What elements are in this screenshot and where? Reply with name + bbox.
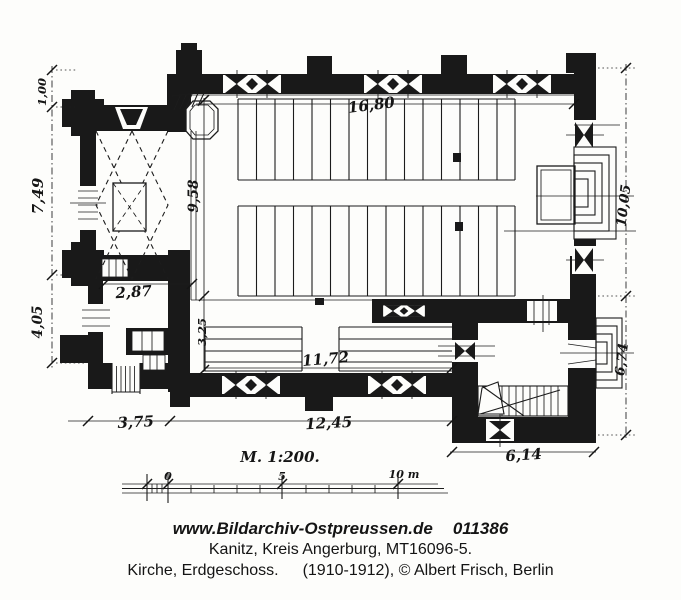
dim-label-porch-width: 3,75 xyxy=(117,412,154,432)
floor-plan-drawing: 16,80 1,00 7,49 4,05 9,58 3,25 10,05 6,7… xyxy=(0,0,681,512)
scanned-archive-page: 16,80 1,00 7,49 4,05 9,58 3,25 10,05 6,7… xyxy=(0,0,681,600)
caption-line-1: www.Bildarchiv-Ostpreussen.de011386 xyxy=(0,518,681,539)
dim-label-south-interior: 11,72 xyxy=(301,348,349,370)
nave-pews xyxy=(191,95,574,305)
dim-label-aisle-depth: 3,25 xyxy=(195,318,209,346)
scale-tick-five: 5 xyxy=(278,470,286,483)
scale-tick-zero: 0 xyxy=(164,470,172,483)
caption-date-credit: (1910-1912), © Albert Frisch, Berlin xyxy=(303,562,554,579)
dim-label-left-upper: 1,00 xyxy=(35,78,49,106)
caption-archive-number: 011386 xyxy=(453,519,508,538)
caption-location: Kanitz, Kreis Angerburg, MT16096-5. xyxy=(0,539,681,560)
caption-website: www.Bildarchiv-Ostpreussen.de xyxy=(173,519,433,538)
dim-label-nave-depth: 9,58 xyxy=(186,179,202,212)
dim-label-south-width: 12,45 xyxy=(305,413,353,433)
scale-bar-label: M. 1:200. xyxy=(239,448,320,466)
scale-tick-ten: 10 m xyxy=(389,468,420,481)
dim-label-annex-width: 6,14 xyxy=(505,445,543,466)
dim-label-right-lower: 6,74 xyxy=(612,342,632,377)
dim-label-left-lower: 4,05 xyxy=(30,306,46,339)
caption-line-3: Kirche, Erdgeschoss.(1910-1912), © Alber… xyxy=(0,560,681,581)
caption-subject: Kirche, Erdgeschoss. xyxy=(127,562,278,579)
pew-rows-lower xyxy=(238,206,515,296)
dim-label-tower-width: 2,87 xyxy=(114,282,153,303)
dim-label-left-middle: 7,49 xyxy=(29,177,47,214)
dim-label-top-width: 16,80 xyxy=(347,93,396,117)
caption: www.Bildarchiv-Ostpreussen.de011386 Kani… xyxy=(0,518,681,581)
scale-bar: M. 1:200. 0 5 10 m xyxy=(122,448,448,503)
dim-label-right-upper: 10,05 xyxy=(614,184,635,228)
